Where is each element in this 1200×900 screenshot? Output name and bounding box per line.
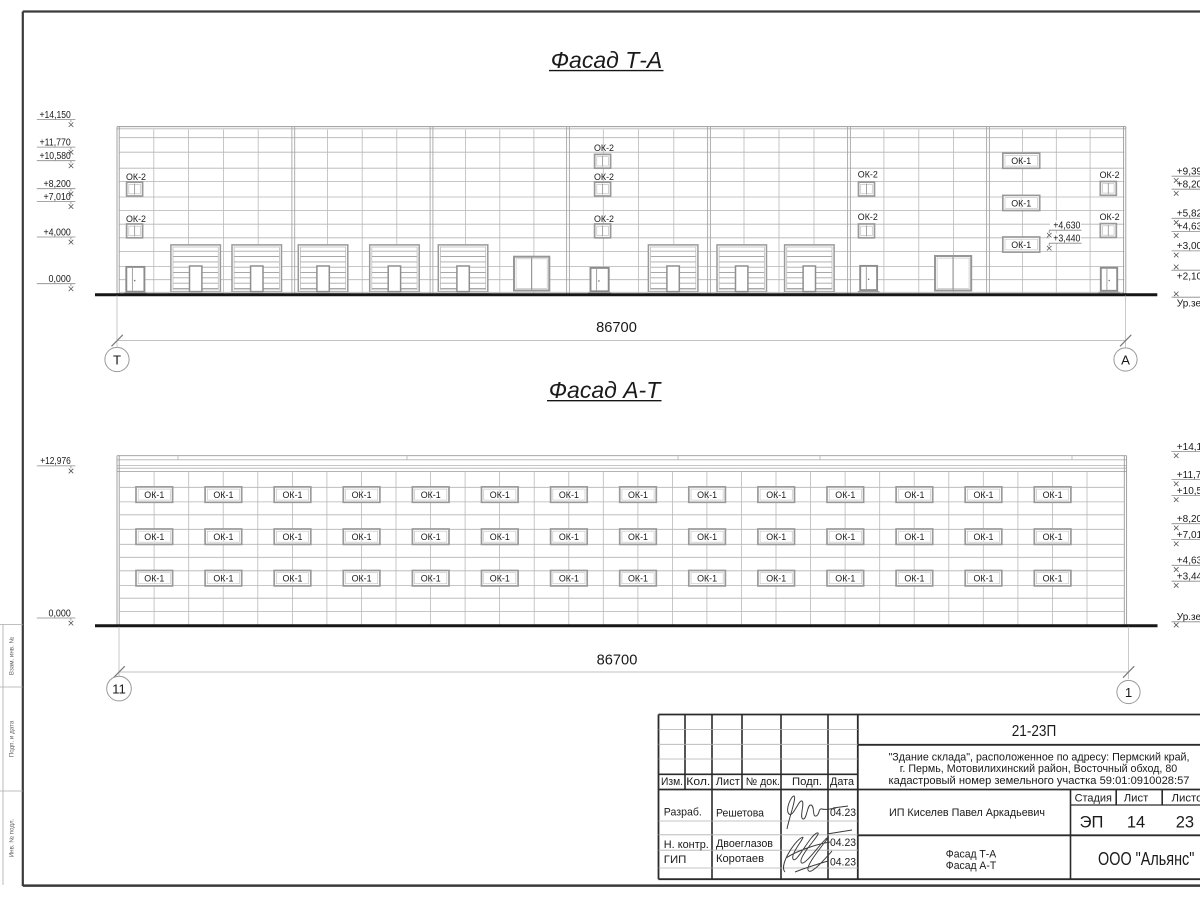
svg-text:04.23: 04.23 <box>830 837 856 849</box>
svg-text:ОК-1: ОК-1 <box>559 532 579 542</box>
svg-text:ОК-2: ОК-2 <box>126 172 146 182</box>
svg-text:ИП Киселев Павел Аркадьевич: ИП Киселев Павел Аркадьевич <box>889 807 1045 819</box>
svg-text:14: 14 <box>1127 813 1145 831</box>
svg-text:ОК-1: ОК-1 <box>559 574 579 584</box>
svg-text:ОК-1: ОК-1 <box>352 490 372 500</box>
svg-text:ОК-2: ОК-2 <box>594 214 614 224</box>
svg-text:Подп. и дата: Подп. и дата <box>9 720 16 757</box>
svg-text:+2,100: +2,100 <box>1177 272 1200 283</box>
svg-text:ОК-2: ОК-2 <box>594 143 614 153</box>
svg-text:ОК-2: ОК-2 <box>858 212 878 222</box>
svg-text:Фасад Т-А: Фасад Т-А <box>946 849 997 861</box>
svg-text:ОК-1: ОК-1 <box>697 490 717 500</box>
svg-text:ОК-1: ОК-1 <box>144 490 164 500</box>
svg-text:ОК-2: ОК-2 <box>1100 212 1120 222</box>
svg-text:86700: 86700 <box>596 319 637 336</box>
svg-text:ОК-1: ОК-1 <box>1043 490 1063 500</box>
svg-text:ОК-1: ОК-1 <box>766 532 786 542</box>
svg-text:Изм.: Изм. <box>661 776 683 788</box>
svg-text:Фасад Т-А: Фасад Т-А <box>551 47 663 73</box>
svg-text:ОК-1: ОК-1 <box>352 574 372 584</box>
svg-text:г. Пермь, Мотовилихинский райо: г. Пермь, Мотовилихинский район, Восточн… <box>900 763 1177 775</box>
svg-text:ОК-2: ОК-2 <box>126 214 146 224</box>
svg-text:1: 1 <box>1125 685 1132 700</box>
svg-text:Решетова: Решетова <box>716 807 765 819</box>
svg-text:ОК-1: ОК-1 <box>283 490 303 500</box>
svg-text:23: 23 <box>1176 813 1194 831</box>
svg-text:ОК-1: ОК-1 <box>490 490 510 500</box>
svg-text:ОК-1: ОК-1 <box>213 532 233 542</box>
svg-text:ОК-1: ОК-1 <box>904 574 924 584</box>
svg-text:86700: 86700 <box>597 651 638 668</box>
svg-text:ОК-1: ОК-1 <box>835 574 855 584</box>
svg-text:Лист: Лист <box>1124 792 1149 804</box>
svg-text:Взам. инв. №: Взам. инв. № <box>9 636 16 675</box>
svg-text:ОК-1: ОК-1 <box>835 490 855 500</box>
svg-text:ОК-1: ОК-1 <box>1011 198 1031 208</box>
svg-text:ОК-1: ОК-1 <box>766 490 786 500</box>
svg-text:04.23: 04.23 <box>830 856 856 868</box>
svg-text:ОК-1: ОК-1 <box>904 532 924 542</box>
svg-text:Подп.: Подп. <box>792 776 822 788</box>
svg-text:А: А <box>1121 352 1130 367</box>
svg-text:№ док.: № док. <box>746 776 780 788</box>
svg-text:ОК-1: ОК-1 <box>974 532 994 542</box>
svg-text:ОК-1: ОК-1 <box>974 490 994 500</box>
svg-text:ГИП: ГИП <box>664 854 687 866</box>
svg-text:ОК-1: ОК-1 <box>904 490 924 500</box>
svg-text:Двоеглазов: Двоеглазов <box>716 838 773 850</box>
svg-text:ОК-1: ОК-1 <box>213 574 233 584</box>
svg-text:ОК-1: ОК-1 <box>628 532 648 542</box>
svg-text:Коротаев: Коротаев <box>716 853 764 865</box>
svg-text:ОК-1: ОК-1 <box>1043 574 1063 584</box>
svg-text:ОК-1: ОК-1 <box>628 490 648 500</box>
svg-text:ОК-2: ОК-2 <box>858 169 878 179</box>
svg-text:Инв. № подл.: Инв. № подл. <box>9 818 16 857</box>
svg-text:ООО "Альянс": ООО "Альянс" <box>1098 848 1194 869</box>
svg-text:Лист: Лист <box>716 776 740 788</box>
svg-text:ОК-1: ОК-1 <box>490 532 510 542</box>
svg-text:ОК-1: ОК-1 <box>974 574 994 584</box>
svg-text:ОК-1: ОК-1 <box>835 532 855 542</box>
svg-text:ОК-2: ОК-2 <box>1100 170 1120 180</box>
svg-text:ОК-1: ОК-1 <box>283 574 303 584</box>
svg-text:ОК-1: ОК-1 <box>697 532 717 542</box>
svg-text:ОК-1: ОК-1 <box>628 574 648 584</box>
svg-text:кадастровый номер земельного у: кадастровый номер земельного участка 59:… <box>889 775 1190 787</box>
svg-text:ОК-1: ОК-1 <box>421 574 441 584</box>
svg-text:ОК-1: ОК-1 <box>1011 240 1031 250</box>
svg-text:Фасад А-Т: Фасад А-Т <box>549 377 662 403</box>
svg-text:Кол.: Кол. <box>686 776 710 788</box>
svg-text:ОК-1: ОК-1 <box>421 490 441 500</box>
svg-text:Дата: Дата <box>830 776 854 788</box>
svg-text:Фасад А-Т: Фасад А-Т <box>946 860 997 872</box>
svg-text:ОК-1: ОК-1 <box>1011 156 1031 166</box>
svg-text:Ур.земли: Ур.земли <box>1177 299 1200 310</box>
svg-text:ОК-1: ОК-1 <box>283 532 303 542</box>
svg-text:ОК-1: ОК-1 <box>352 532 372 542</box>
svg-text:ОК-1: ОК-1 <box>1043 532 1063 542</box>
svg-text:"Здание склада", расположенное: "Здание склада", расположенное по адресу… <box>889 752 1190 764</box>
svg-text:ОК-1: ОК-1 <box>766 574 786 584</box>
svg-text:ОК-1: ОК-1 <box>144 574 164 584</box>
svg-text:ЭП: ЭП <box>1080 814 1104 832</box>
svg-text:Н. контр.: Н. контр. <box>664 839 709 851</box>
svg-text:ОК-1: ОК-1 <box>559 490 579 500</box>
svg-text:ОК-1: ОК-1 <box>213 490 233 500</box>
svg-text:Т: Т <box>113 352 121 367</box>
svg-text:Листов: Листов <box>1172 792 1200 804</box>
svg-text:11: 11 <box>112 682 126 697</box>
svg-text:ОК-2: ОК-2 <box>594 172 614 182</box>
svg-text:ОК-1: ОК-1 <box>697 574 717 584</box>
svg-text:Разраб.: Разраб. <box>664 806 702 818</box>
svg-text:ОК-1: ОК-1 <box>144 532 164 542</box>
svg-text:Стадия: Стадия <box>1075 793 1112 805</box>
svg-text:Ур.земли: Ур.земли <box>1177 612 1200 623</box>
svg-text:21-23П: 21-23П <box>1012 723 1057 740</box>
svg-text:ОК-1: ОК-1 <box>421 532 441 542</box>
svg-text:ОК-1: ОК-1 <box>490 574 510 584</box>
